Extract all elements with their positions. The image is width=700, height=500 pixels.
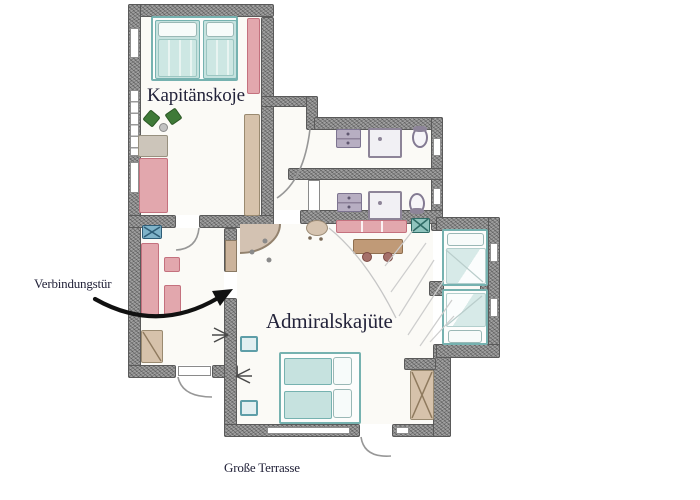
- bathroom-vanity: [337, 193, 362, 212]
- toilet-tank: [413, 126, 427, 132]
- pillow: [333, 357, 352, 385]
- wardrobe-pink-hall: [141, 243, 159, 317]
- cabinet-pink: [164, 285, 181, 315]
- shower: [368, 128, 402, 158]
- wall: [224, 298, 237, 437]
- desk-gray: [138, 135, 168, 157]
- mattress: [284, 358, 332, 385]
- wall: [488, 217, 500, 358]
- window: [490, 243, 498, 262]
- desk-chair: [306, 220, 328, 236]
- blanket: [206, 39, 234, 76]
- toilet-tank: [410, 208, 424, 214]
- small-table-pink: [164, 257, 180, 272]
- cabinet-tan: [141, 330, 163, 363]
- wall: [436, 344, 500, 358]
- sofa-pink: [139, 158, 168, 213]
- blanket: [446, 248, 486, 284]
- pillow: [448, 330, 482, 343]
- blanket: [158, 39, 197, 77]
- sink-teal: [411, 218, 430, 233]
- entrance-door-leaf: [178, 366, 211, 376]
- chair-round: [383, 252, 393, 262]
- connecting-door-leaf: [225, 240, 237, 272]
- bathroom-vanity: [336, 129, 361, 148]
- room-label-admiralskajuete: Admiralskajüte: [266, 309, 393, 334]
- pillow: [447, 233, 484, 246]
- annotation-label-verbindungstuer: Verbindungstür: [34, 276, 111, 292]
- pillow: [206, 22, 234, 37]
- window: [433, 188, 441, 205]
- wall: [404, 358, 436, 370]
- single-bed-lower: [442, 289, 488, 345]
- double-bed-admiralskajuete: [279, 352, 361, 424]
- room-floor-corridor: [274, 107, 306, 210]
- wardrobe-crossed: [410, 370, 434, 420]
- pillow: [158, 22, 197, 37]
- sink-blue: [142, 225, 162, 239]
- mattress: [284, 391, 332, 419]
- double-bed-kapitaenskoje: [151, 16, 238, 81]
- door-arc: [361, 437, 391, 456]
- wall: [261, 17, 274, 229]
- sideboard-pink: [336, 220, 407, 233]
- side-table-round: [159, 123, 168, 132]
- wall: [288, 168, 443, 180]
- wardrobe-pink: [247, 18, 260, 94]
- room-label-kapitaenskoje: Kapitänskoje: [147, 85, 245, 107]
- blanket: [446, 293, 486, 327]
- tall-wardrobe-tan: [244, 114, 260, 216]
- pillow: [333, 389, 352, 418]
- bathroom-door-leaf: [308, 180, 320, 211]
- table-brown: [353, 239, 403, 254]
- window: [130, 162, 139, 193]
- single-bed-upper: [442, 229, 488, 286]
- door-arc: [178, 377, 212, 397]
- floor-plan: Kapitänskoje Admiralskajüte Verbindungst…: [0, 0, 700, 500]
- terrace-label: Große Terrasse: [224, 460, 300, 476]
- shower: [368, 191, 402, 220]
- nightstand: [240, 336, 258, 352]
- window: [396, 427, 409, 434]
- window: [433, 138, 441, 156]
- wall: [128, 365, 176, 378]
- window: [490, 298, 498, 317]
- window: [267, 427, 350, 434]
- window: [130, 28, 139, 58]
- nightstand: [240, 400, 258, 416]
- chair-round: [362, 252, 372, 262]
